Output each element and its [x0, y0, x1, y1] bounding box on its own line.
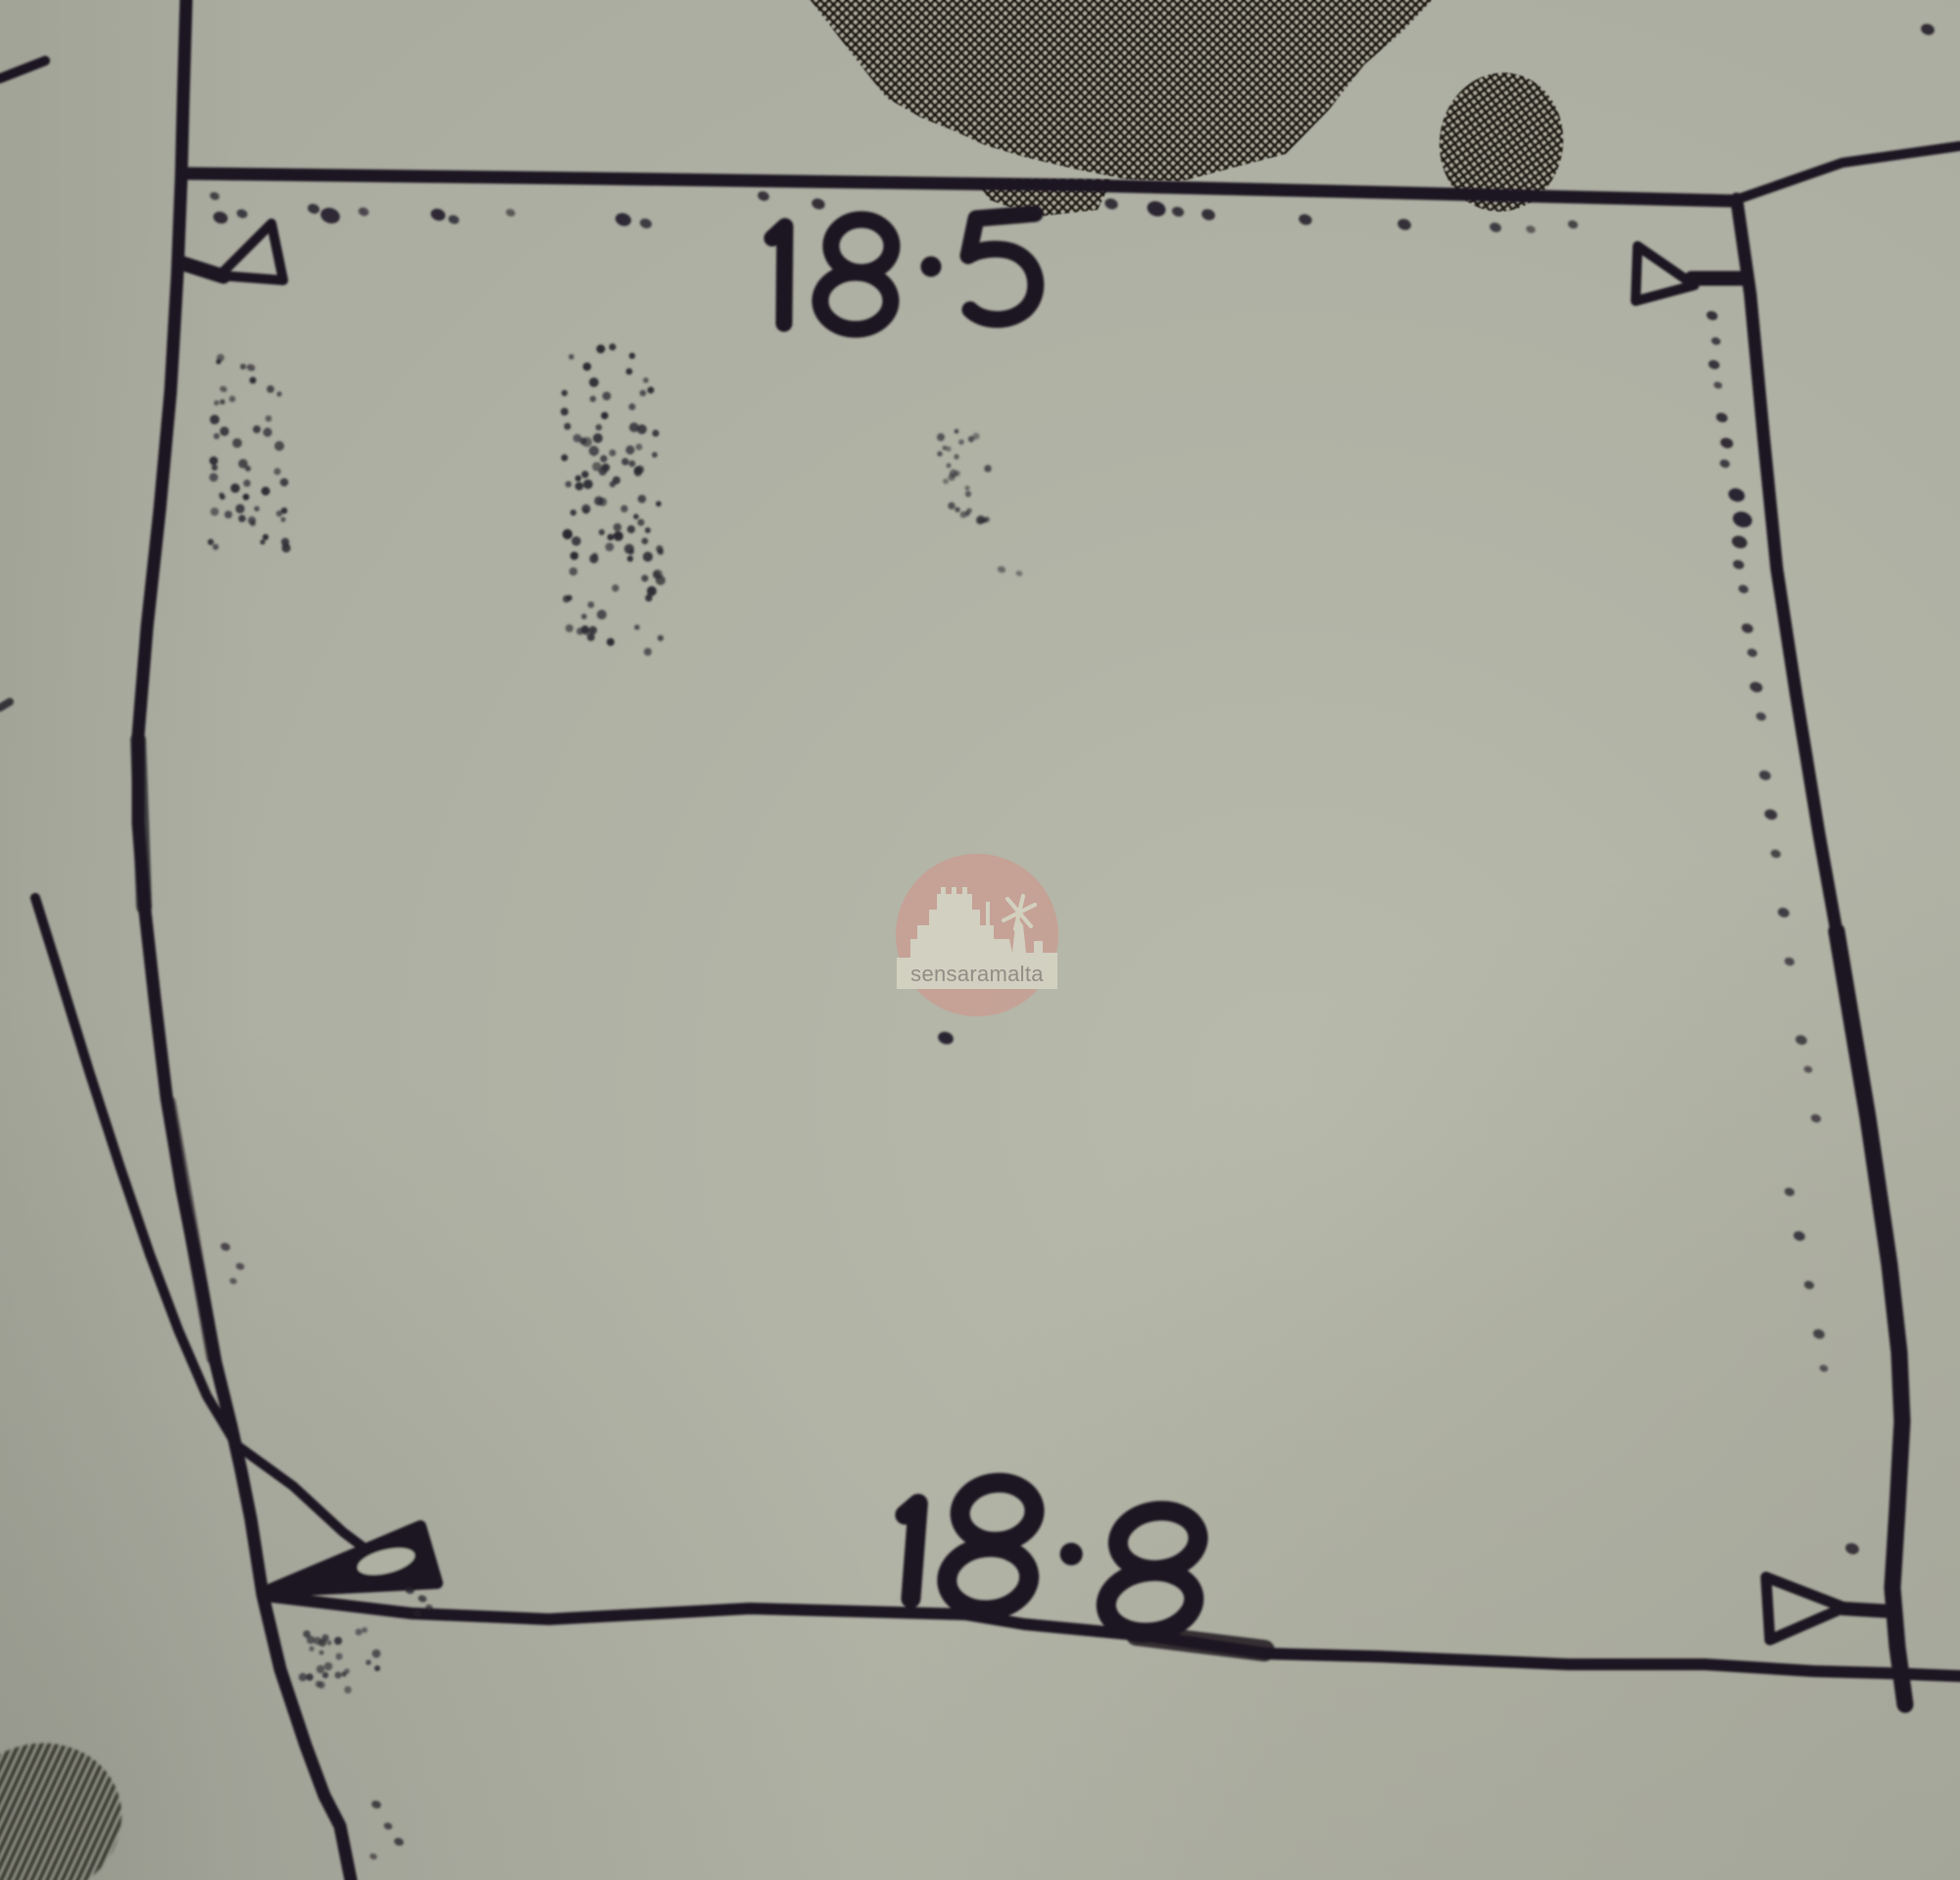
svg-text:sensaramalta: sensaramalta [910, 962, 1044, 986]
